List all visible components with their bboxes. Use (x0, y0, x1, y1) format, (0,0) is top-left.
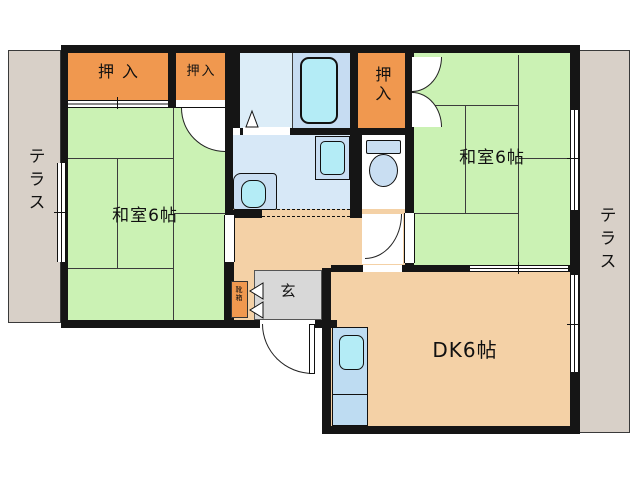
shoe-cabinet-doors (249, 282, 264, 319)
washing-machine-pan-inner (320, 141, 345, 175)
sliding-door-tick (518, 262, 519, 274)
room-label-genkan: 玄 (271, 283, 305, 300)
terrace-label-right: テラス (595, 206, 615, 275)
wall (322, 426, 580, 434)
wall (350, 135, 362, 218)
closet-label: 押入 (68, 63, 168, 81)
window (570, 110, 579, 210)
bathroom-divider-line (292, 53, 293, 128)
closet-sliding-door (68, 100, 168, 108)
closet-door-frame (176, 100, 225, 108)
window-tick (54, 212, 67, 213)
washitsu-dk-sliding-door (470, 265, 568, 272)
tatami-line (68, 268, 173, 269)
bathtub (300, 57, 338, 124)
wall (225, 128, 233, 215)
entrance-door-leaf (309, 324, 315, 374)
floor-plan: 和室6帖 和室6帖 DK6帖 玄 押入 押入 押入 靴箱 テラス テラス (0, 0, 638, 480)
washitsu-right-entry-sliding-door (404, 213, 415, 263)
toilet-bowl (369, 154, 398, 187)
dk-entry-opening (363, 265, 402, 272)
tatami-line (68, 158, 173, 159)
closet-label: 押入 (176, 65, 225, 80)
washbasin-bowl (241, 180, 266, 208)
wall (322, 268, 331, 426)
tatami-line (414, 213, 518, 214)
wall (225, 45, 240, 128)
terrace-label-left: テラス (24, 147, 44, 216)
room-label-washitsu-left: 和室6帖 (80, 207, 210, 227)
entrance-door-swing-arc (262, 324, 313, 374)
kitchen-sink (339, 335, 364, 370)
wall (350, 45, 358, 135)
shoe-cabinet-label: 靴箱 (235, 286, 243, 302)
bathroom-door-triangle (245, 109, 259, 128)
wall (168, 45, 176, 108)
room-label-washitsu-right: 和室6帖 (427, 149, 557, 169)
room-label-dk: DK6帖 (400, 339, 530, 362)
kitchen-unit-divider (332, 394, 368, 395)
window-tick (567, 158, 580, 159)
wall (570, 45, 580, 434)
washitsu-left-entry-sliding-door (224, 215, 235, 262)
closet-label: 押入 (372, 66, 390, 104)
bathroom-door-opening (243, 127, 290, 135)
window-tick (567, 324, 580, 325)
sliding-door-tick (117, 97, 118, 109)
toilet-tank (366, 140, 401, 154)
washroom-hallway-open-boundary (262, 209, 350, 217)
wall (61, 45, 578, 53)
